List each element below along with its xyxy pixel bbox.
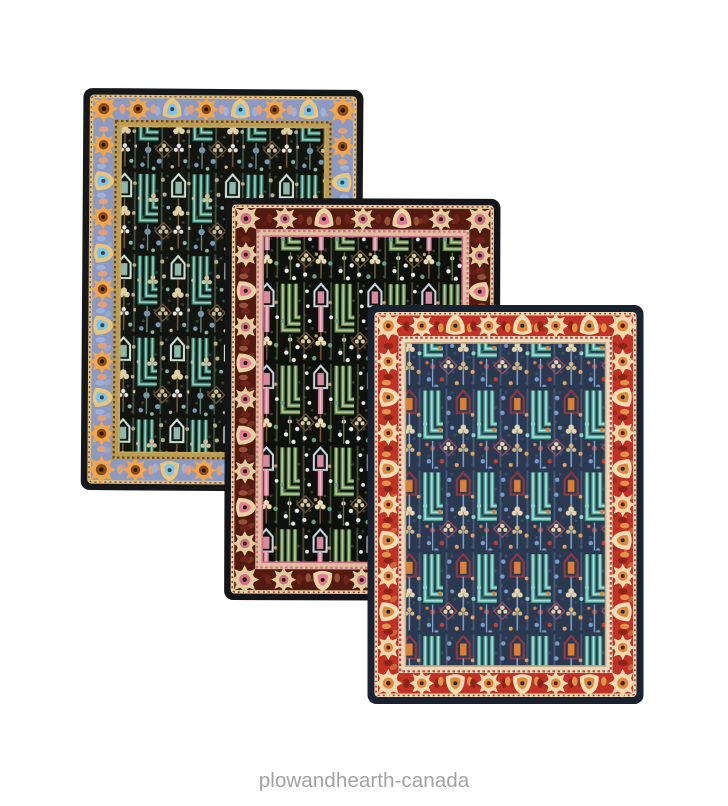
svg-text:plowandhearth-canada: plowandhearth-canada: [259, 769, 470, 792]
